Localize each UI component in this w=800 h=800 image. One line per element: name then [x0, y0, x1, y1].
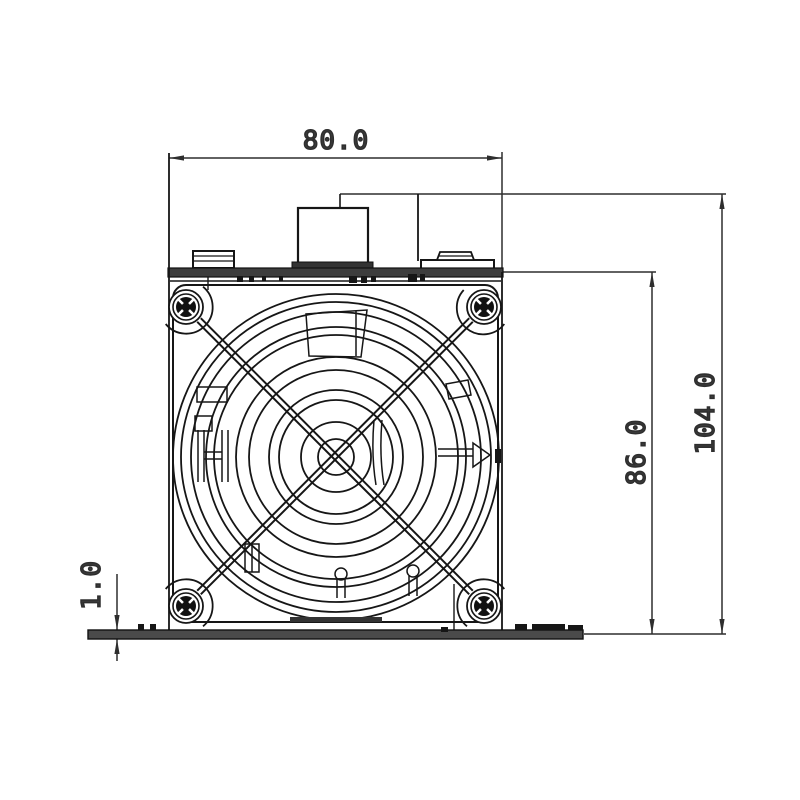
dimension-overall-height: 104.0 — [340, 194, 726, 634]
mounting-bar-body — [168, 268, 503, 277]
guard-hub-ring-inner — [318, 439, 354, 475]
dim-pt-label: 1.0 — [77, 560, 107, 610]
guard-cross-wires — [197, 318, 473, 594]
guard-ring — [249, 370, 423, 544]
guard-ring — [236, 357, 436, 557]
dimension-body-height: 86.0 — [502, 272, 656, 634]
corner-screw-top-right — [467, 290, 501, 324]
mounting-bar — [168, 268, 503, 290]
blade-top — [306, 310, 367, 357]
dim-pt-arrow-lower — [114, 639, 119, 654]
dim-oh-arrow-top — [719, 194, 724, 209]
dim-bh-arrow-top — [649, 272, 654, 287]
guard-hub-ring-outer — [301, 422, 371, 492]
junction-box — [298, 208, 368, 264]
dim-width-arrow-right — [487, 155, 502, 160]
drawing-canvas: 80.0 104.0 86.0 1.0 — [0, 0, 800, 800]
dim-bh-label: 86.0 — [622, 419, 652, 486]
dim-width-label: 80.0 — [303, 126, 370, 156]
strut-left-h — [198, 430, 228, 482]
corner-screw-bottom-right — [467, 589, 501, 623]
blade-right-mid — [438, 443, 490, 467]
dim-oh-arrow-bottom — [719, 619, 724, 634]
dim-bh-arrow-bottom — [649, 619, 654, 634]
blade-right-curve — [373, 420, 384, 485]
dim-pt-arrow-upper — [114, 615, 119, 630]
guard-bottom-tangent — [290, 617, 382, 622]
base-plate-body — [88, 630, 583, 639]
top-components — [193, 194, 494, 273]
base-plate — [88, 624, 583, 639]
corner-screw-top-left — [169, 290, 203, 324]
dimension-plate-thickness: 1.0 — [77, 560, 120, 661]
hub-keyholes — [335, 565, 419, 598]
engineering-drawing: 80.0 104.0 86.0 1.0 — [0, 0, 800, 800]
terminal-block — [193, 251, 234, 268]
corner-screw-bottom-left — [169, 589, 203, 623]
guard-ring — [214, 335, 458, 579]
guard-ring — [191, 312, 481, 602]
dim-oh-label: 104.0 — [691, 371, 721, 454]
guard-ring — [269, 390, 403, 524]
dim-width-arrow-left — [169, 155, 184, 160]
guard-ring — [279, 400, 393, 514]
